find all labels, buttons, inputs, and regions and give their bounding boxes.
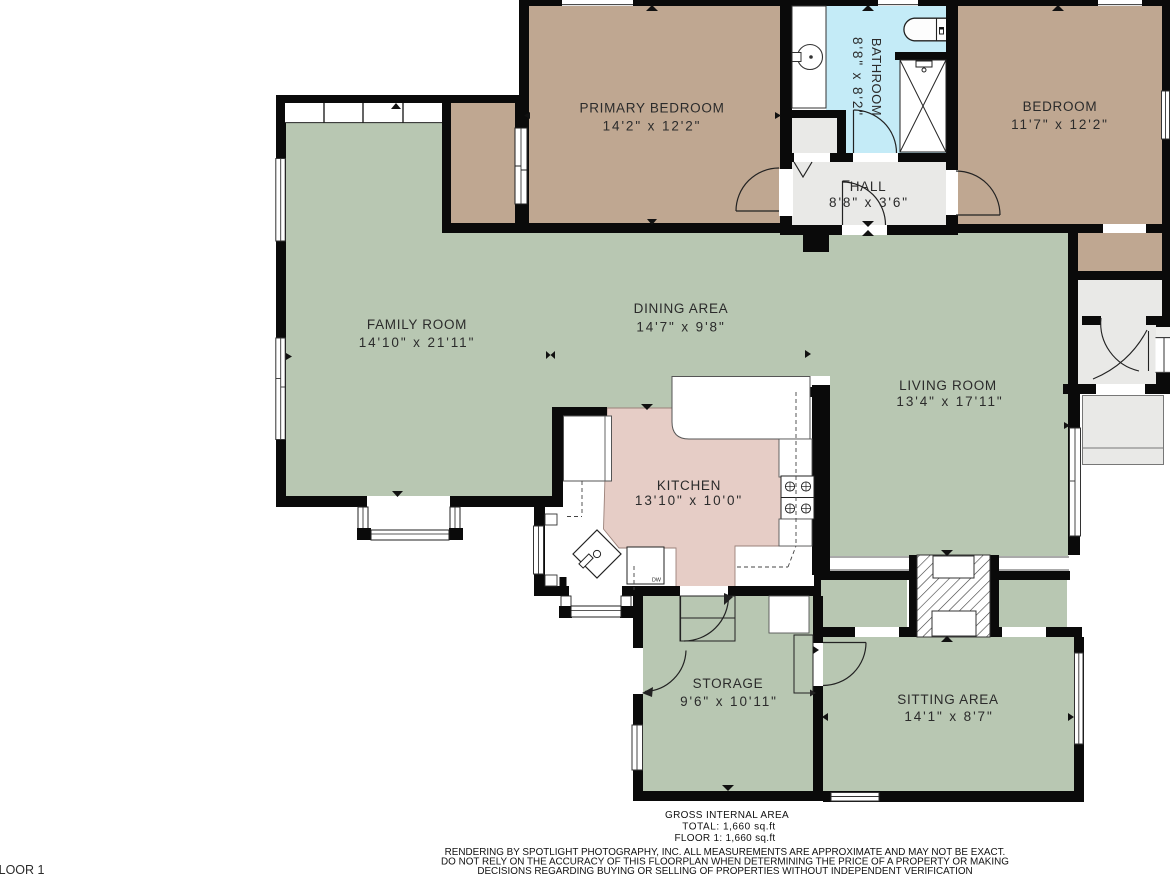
svg-text:8'8" x 8'2": 8'8" x 8'2" bbox=[850, 37, 865, 117]
svg-text:DINING AREA: DINING AREA bbox=[634, 301, 729, 316]
svg-text:FLOOR 1: FLOOR 1 bbox=[0, 863, 45, 877]
svg-text:HALL: HALL bbox=[850, 179, 887, 194]
svg-text:SITTING AREA: SITTING AREA bbox=[897, 692, 998, 707]
svg-text:GROSS INTERNAL AREA: GROSS INTERNAL AREA bbox=[665, 810, 789, 821]
svg-text:LIVING ROOM: LIVING ROOM bbox=[899, 378, 997, 393]
svg-text:DW: DW bbox=[652, 578, 662, 584]
svg-text:FLOOR 1: 1,660 sq.ft: FLOOR 1: 1,660 sq.ft bbox=[674, 833, 775, 844]
svg-text:14'7" x 9'8": 14'7" x 9'8" bbox=[636, 320, 725, 335]
svg-text:11'7" x 12'2": 11'7" x 12'2" bbox=[1011, 117, 1109, 132]
svg-text:13'10" x 10'0": 13'10" x 10'0" bbox=[635, 493, 743, 508]
svg-text:DECISIONS REGARDING BUYING OR: DECISIONS REGARDING BUYING OR SELLING OF… bbox=[477, 866, 972, 877]
svg-text:STORAGE: STORAGE bbox=[693, 676, 764, 691]
svg-text:BEDROOM: BEDROOM bbox=[1023, 99, 1098, 114]
svg-text:TOTAL: 1,660 sq.ft: TOTAL: 1,660 sq.ft bbox=[682, 822, 775, 833]
svg-text:8'8" x 3'6": 8'8" x 3'6" bbox=[829, 195, 909, 210]
svg-text:FAMILY ROOM: FAMILY ROOM bbox=[367, 317, 467, 332]
svg-text:BATHROOM: BATHROOM bbox=[869, 38, 884, 116]
svg-text:KITCHEN: KITCHEN bbox=[657, 478, 721, 493]
svg-text:9'6" x 10'11": 9'6" x 10'11" bbox=[680, 694, 778, 709]
svg-text:13'4" x 17'11": 13'4" x 17'11" bbox=[896, 394, 1003, 409]
svg-text:PRIMARY BEDROOM: PRIMARY BEDROOM bbox=[579, 101, 724, 116]
svg-text:14'2" x 12'2": 14'2" x 12'2" bbox=[603, 119, 702, 134]
svg-text:14'10" x 21'11": 14'10" x 21'11" bbox=[359, 335, 476, 350]
svg-text:14'1" x 8'7": 14'1" x 8'7" bbox=[904, 709, 993, 724]
